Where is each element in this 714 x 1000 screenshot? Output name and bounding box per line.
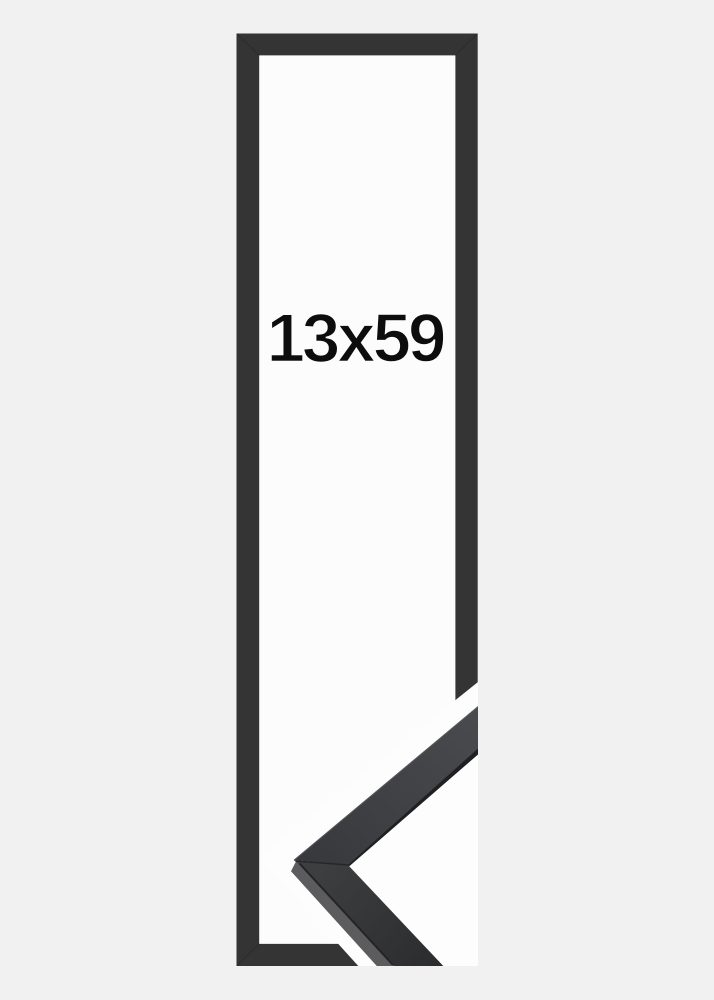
svg-text:13x59: 13x59 (267, 300, 444, 377)
